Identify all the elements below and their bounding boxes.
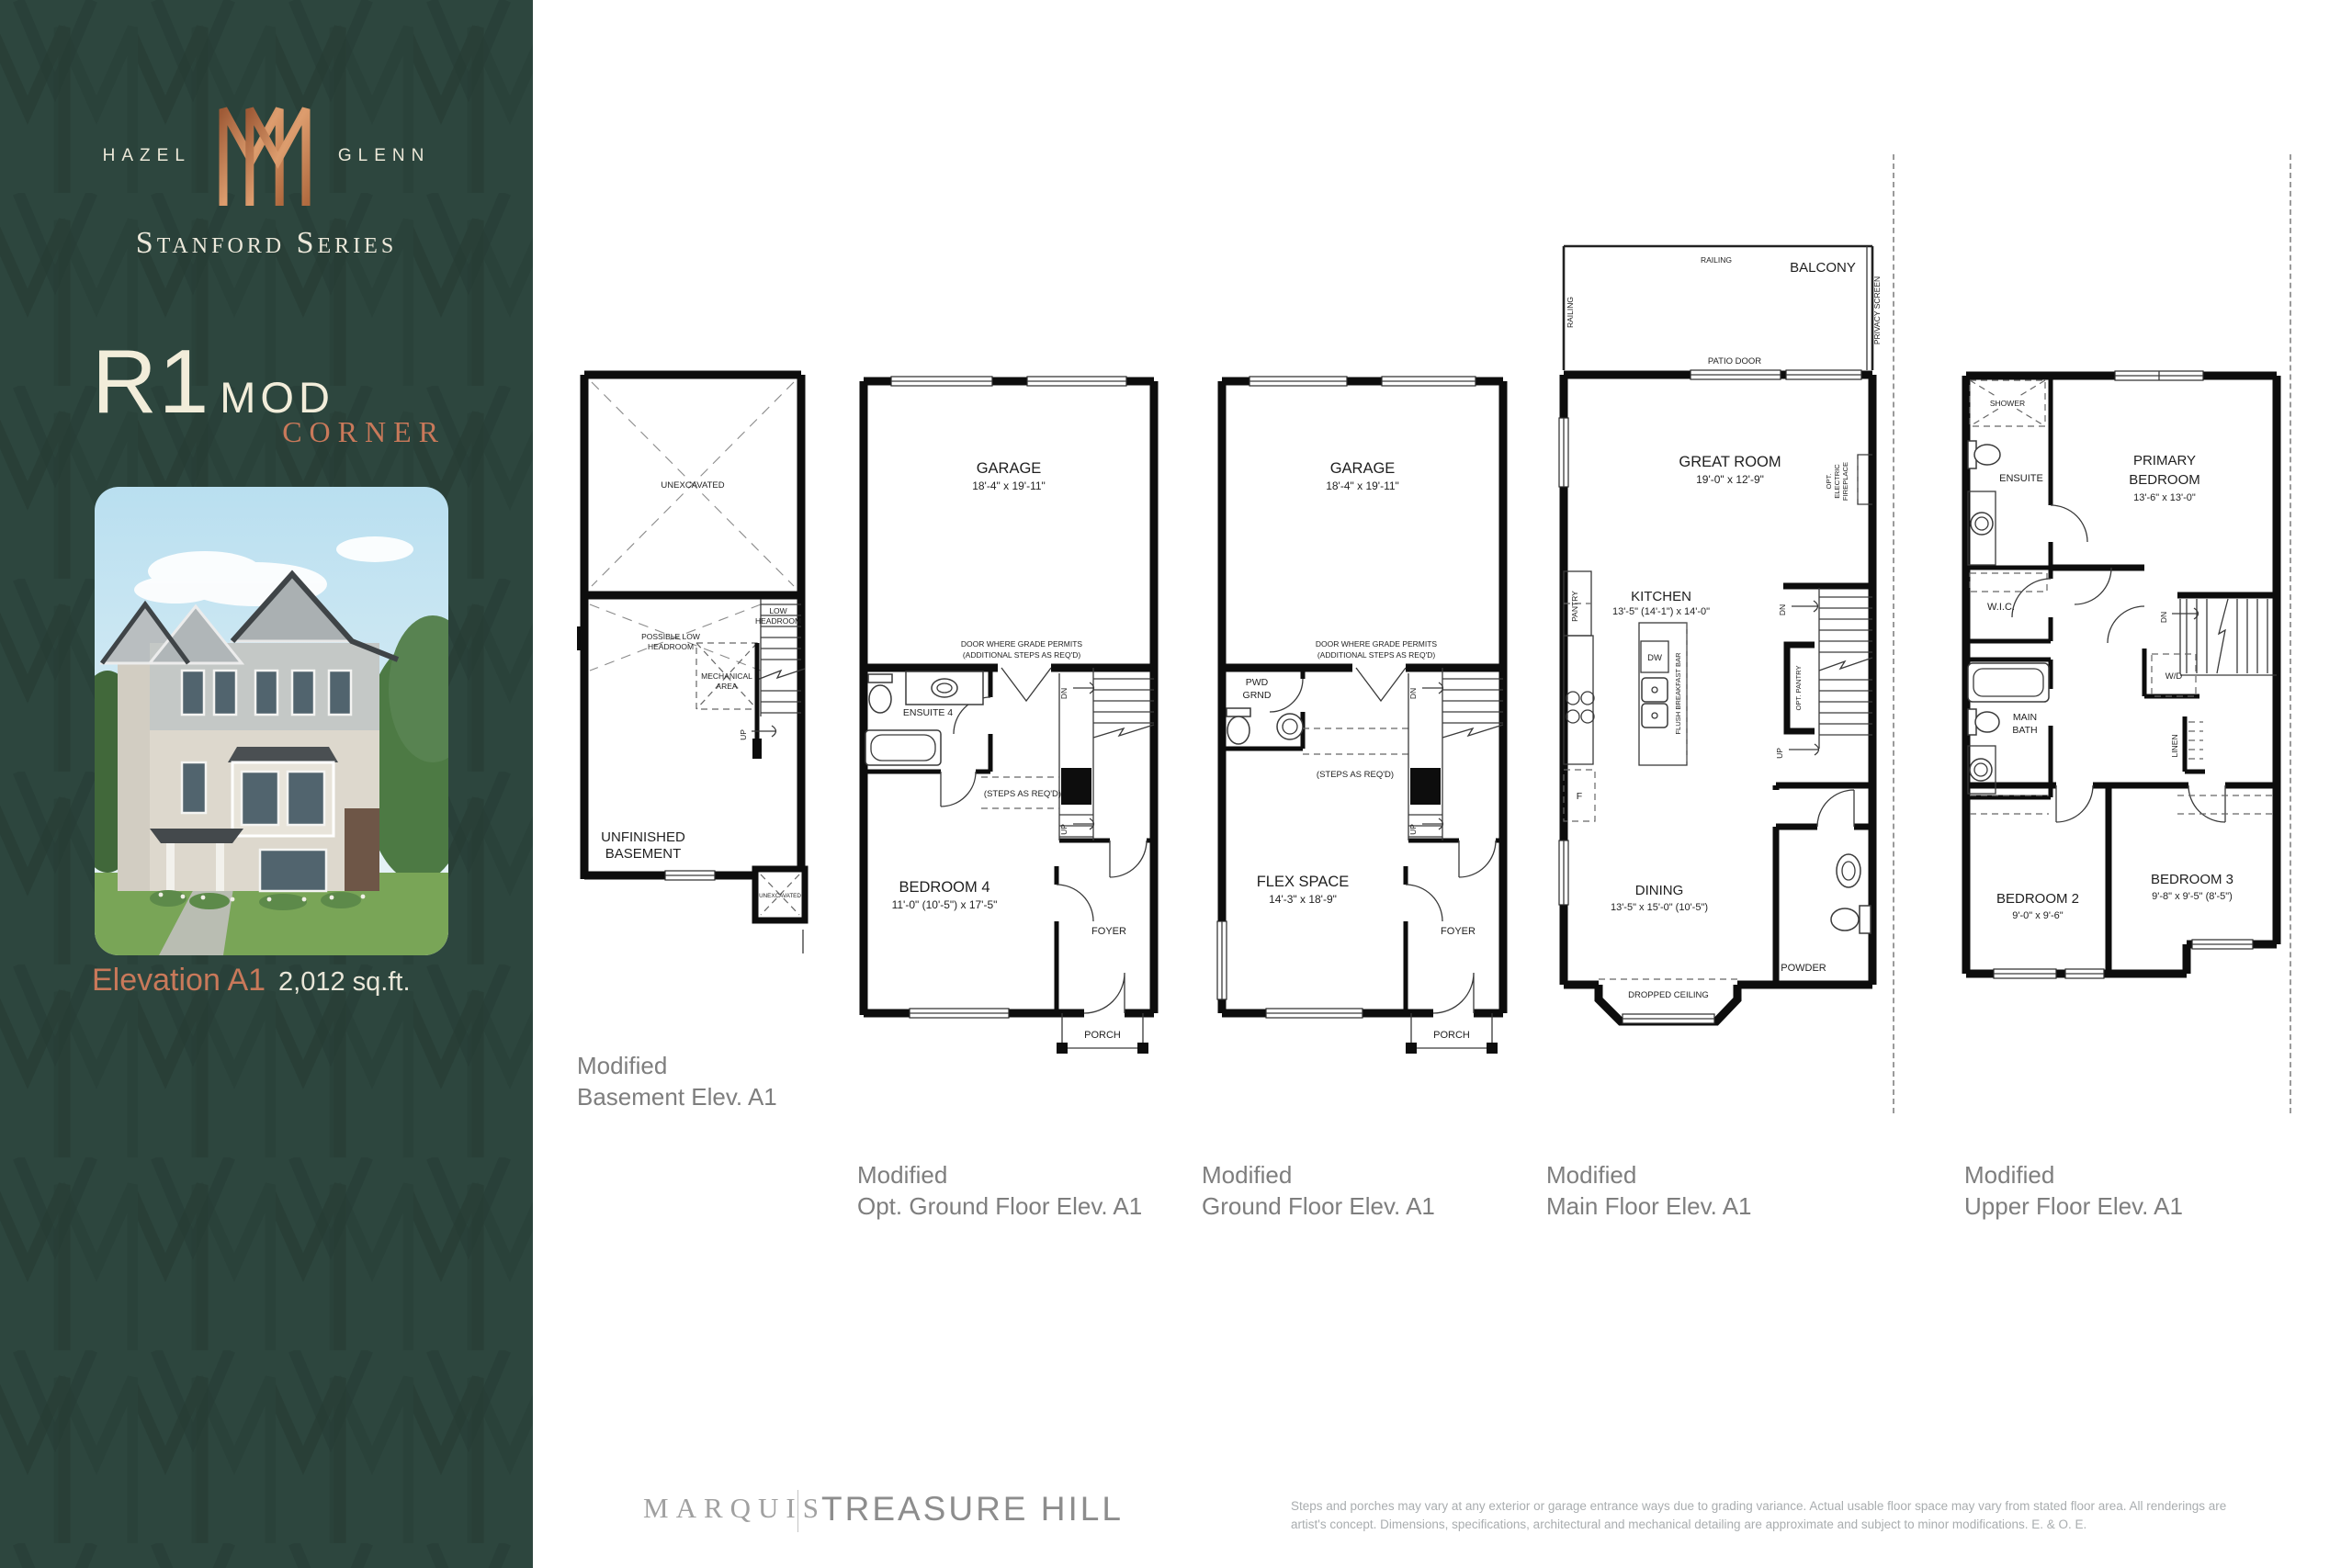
label-primary-dims: 13'-6" x 13'-0"	[2133, 492, 2196, 503]
brochure-page: HAZEL GLENN Stanford Series R1 MOD CORNE…	[0, 0, 2352, 1568]
elevation-label: Elevation A1	[92, 963, 266, 998]
caption-line: Opt. Ground Floor Elev. A1	[857, 1190, 1142, 1222]
label-low-headroom-2: HEADROOM	[755, 616, 801, 626]
label-up: UP	[1775, 748, 1784, 759]
treasure-hill-logo: TREASURE HILL	[821, 1490, 1124, 1529]
label-unfinished-2: BASEMENT	[605, 846, 682, 862]
label-fireplace-2: ELECTRIC	[1833, 464, 1841, 499]
label-great-room-dims: 19'-0" x 12'-9"	[1696, 473, 1764, 486]
brand-right-word: GLENN	[338, 146, 430, 166]
label-dn: DN	[2159, 612, 2168, 623]
label-shower: SHOWER	[1990, 399, 2025, 408]
main-walls	[1564, 375, 1872, 1021]
label-pwd-2: GRND	[1243, 690, 1272, 701]
label-bedroom2: BEDROOM 2	[1996, 891, 2079, 907]
label-fridge: F	[1577, 791, 1582, 802]
label-bedroom4-dims: 11'-0" (10'-5") x 17'-5"	[892, 898, 998, 911]
label-bedroom2-dims: 9'-0" x 9'-6"	[2012, 910, 2064, 921]
label-dining-dims: 13'-5" x 15'-0" (10'-5")	[1611, 902, 1708, 913]
label-garage-dims: 18'-4" x 19'-11"	[972, 479, 1046, 492]
party-wall-dashed-line-left	[1893, 154, 1894, 1113]
caption-opt-ground: Modified Opt. Ground Floor Elev. A1	[857, 1159, 1142, 1222]
caption-ground: Modified Ground Floor Elev. A1	[1202, 1159, 1435, 1222]
label-up: UP	[1059, 824, 1069, 835]
floorplan-ground: GARAGE 18'-4" x 19'-11" DOOR WHERE GRADE…	[1211, 370, 1514, 1105]
label-dn: DN	[1778, 604, 1787, 615]
mm-monogram-icon	[215, 101, 314, 211]
model-name: R1	[92, 336, 210, 426]
label-bedroom3: BEDROOM 3	[2151, 872, 2233, 887]
label-wd: W/D	[2165, 671, 2183, 682]
caption-line: Main Floor Elev. A1	[1546, 1190, 1752, 1222]
disclaimer-text: Steps and porches may vary at any exteri…	[1291, 1497, 2283, 1534]
caption-main: Modified Main Floor Elev. A1	[1546, 1159, 1752, 1222]
floorplan-opt-ground: GARAGE 18'-4" x 19'-11" DOOR WHERE GRADE…	[853, 370, 1165, 1105]
label-breakfast-bar: FLUSH BREAKFAST BAR	[1674, 652, 1682, 735]
label-mechanical-2: AREA	[716, 682, 737, 691]
ground-stairs	[1408, 668, 1503, 840]
elevation-caption: Elevation A1 2,012 sq.ft.	[92, 963, 411, 998]
label-pantry: PANTRY	[1570, 591, 1579, 622]
label-bedroom3-dims: 9'-8" x 9'-5" (8'-5")	[2152, 891, 2233, 902]
label-wic: W.I.C.	[1987, 602, 2015, 613]
label-fireplace-3: FIREPLACE	[1841, 462, 1849, 501]
label-main-bath-1: MAIN	[2013, 712, 2037, 723]
label-privacy-screen: PRIVACY SCREEN	[1872, 276, 1882, 344]
label-porch: PORCH	[1084, 1030, 1121, 1041]
label-possible-low-headroom-2: HEADROOM	[648, 642, 694, 651]
model-variant: CORNER	[257, 415, 446, 449]
label-bedroom4: BEDROOM 4	[899, 879, 989, 896]
caption-line: Modified	[577, 1050, 777, 1081]
label-railing-left: RAILING	[1566, 297, 1575, 328]
caption-line: Modified	[1964, 1159, 2183, 1190]
sidebar: HAZEL GLENN Stanford Series R1 MOD CORNE…	[0, 0, 533, 1568]
caption-line: Basement Elev. A1	[577, 1081, 777, 1112]
label-balcony: BALCONY	[1790, 260, 1856, 276]
caption-line: Modified	[1202, 1159, 1435, 1190]
label-flex-dims: 14'-3" x 18'-9"	[1269, 893, 1337, 906]
caption-basement: Modified Basement Elev. A1	[577, 1050, 777, 1112]
footer-divider	[797, 1490, 798, 1532]
label-mechanical-1: MECHANICAL	[701, 671, 752, 681]
label-unexcavated-small: UNEXCAVATED	[759, 893, 801, 899]
label-powder: POWDER	[1781, 963, 1826, 974]
label-door-note-2: (ADDITIONAL STEPS AS REQ'D)	[1317, 650, 1436, 660]
label-up: UP	[739, 729, 748, 740]
elevation-area: 2,012 sq.ft.	[278, 967, 411, 998]
label-door-note-1: DOOR WHERE GRADE PERMITS	[961, 639, 1083, 649]
label-unexcavated: UNEXCAVATED	[661, 480, 724, 491]
label-possible-low-headroom-1: POSSIBLE LOW	[641, 632, 700, 641]
label-opt-pantry: OPT. PANTRY	[1794, 665, 1803, 710]
disclaimer-line-1: Steps and porches may vary at any exteri…	[1291, 1497, 2283, 1516]
caption-line: Ground Floor Elev. A1	[1202, 1190, 1435, 1222]
marquis-logo: MARQUIS	[643, 1492, 826, 1525]
label-main-bath-2: BATH	[2012, 725, 2037, 736]
label-garage: GARAGE	[977, 460, 1042, 477]
label-ensuite4: ENSUITE 4	[903, 707, 953, 718]
label-up: UP	[1408, 824, 1418, 835]
label-porch: PORCH	[1433, 1030, 1470, 1041]
label-dropped-ceiling: DROPPED CEILING	[1628, 990, 1709, 1000]
label-dining: DINING	[1635, 883, 1684, 898]
caption-line: Modified	[857, 1159, 1142, 1190]
elevation-rendering-image	[95, 487, 448, 955]
label-garage-dims: 18'-4" x 19'-11"	[1326, 479, 1399, 492]
model-title: R1 MOD	[92, 336, 334, 426]
ensuite4-fixtures	[865, 671, 983, 765]
brand-lockup: HAZEL GLENN	[0, 92, 533, 220]
brand-left-word: HAZEL	[103, 146, 191, 166]
label-dn: DN	[1059, 688, 1069, 699]
floorplan-upper: SHOWER ENSUITE PRIMARY BEDROOM 13'-6" x …	[1957, 367, 2290, 1029]
label-ensuite: ENSUITE	[1999, 473, 2043, 484]
label-kitchen-dims: 13'-5" (14'-1") x 14'-0"	[1612, 606, 1710, 617]
label-primary-2: BEDROOM	[2129, 472, 2200, 488]
caption-line: Upper Floor Elev. A1	[1964, 1190, 2183, 1222]
series-title: Stanford Series	[0, 226, 533, 261]
label-low-headroom-1: LOW	[769, 606, 786, 615]
label-dn: DN	[1408, 688, 1418, 699]
label-dw: DW	[1647, 653, 1662, 663]
label-railing-top: RAILING	[1701, 255, 1732, 265]
floorplan-main: RAILING BALCONY RAILING PRIVACY SCREEN P…	[1551, 239, 1900, 1052]
label-primary-1: PRIMARY	[2133, 453, 2196, 468]
label-steps-note: (STEPS AS REQ'D)	[1317, 770, 1394, 780]
pwd-fixtures	[1227, 708, 1303, 744]
label-flex: FLEX SPACE	[1257, 874, 1350, 890]
caption-line: Modified	[1546, 1159, 1752, 1190]
label-foyer: FOYER	[1091, 926, 1126, 937]
powder-fixtures	[1831, 854, 1871, 933]
upper-stairs	[2172, 599, 2277, 675]
label-great-room: GREAT ROOM	[1679, 454, 1781, 470]
label-garage: GARAGE	[1330, 460, 1396, 477]
label-foyer: FOYER	[1441, 926, 1476, 937]
floorplan-basement: UNEXCAVATED POSSIBLE LOW HEADROOM LOW HE…	[577, 367, 808, 960]
label-door-note-2: (ADDITIONAL STEPS AS REQ'D)	[963, 650, 1081, 660]
label-fireplace-1: OPT.	[1825, 474, 1833, 490]
label-linen: LINEN	[2170, 734, 2179, 757]
label-door-note-1: DOOR WHERE GRADE PERMITS	[1316, 639, 1438, 649]
label-pwd-1: PWD	[1246, 677, 1269, 688]
label-unfinished-1: UNFINISHED	[601, 829, 685, 845]
disclaimer-line-2: artist's concept. Dimensions, specificat…	[1291, 1516, 2283, 1534]
label-kitchen: KITCHEN	[1631, 589, 1691, 604]
caption-upper: Modified Upper Floor Elev. A1	[1964, 1159, 2183, 1222]
label-patio-door: PATIO DOOR	[1708, 356, 1761, 367]
party-wall-dashed-line-right	[2290, 154, 2291, 1113]
label-steps-note: (STEPS AS REQ'D)	[984, 789, 1061, 799]
